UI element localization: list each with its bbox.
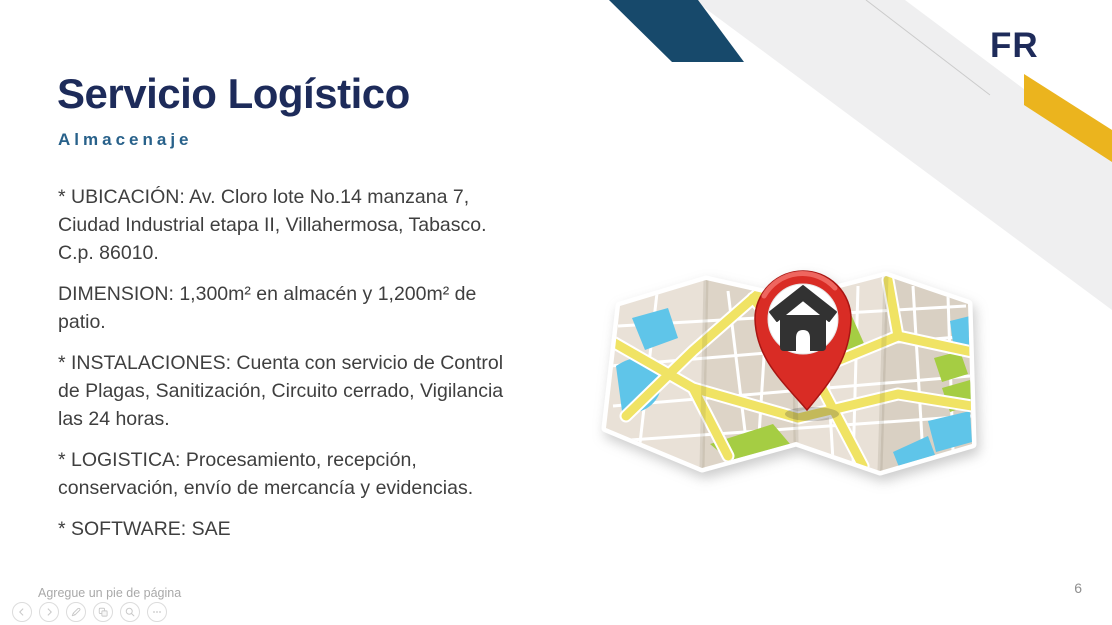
presentation-slide: FR Servicio Logístico Almacenaje * UBICA… [0,0,1112,625]
pen-annotate-icon [70,606,82,618]
slide-subtitle: Almacenaje [58,130,193,150]
body-paragraph-logistica: * LOGISTICA: Procesamiento, recepción, c… [58,446,520,502]
thin-diagonal-line [866,0,990,95]
body-paragraph-dimension: DIMENSION: 1,300m² en almacén y 1,200m² … [58,280,520,336]
more-options-ellipsis-icon [151,606,163,618]
body-paragraph-ubicacion: * UBICACIÓN: Av. Cloro lote No.14 manzan… [58,183,520,267]
more-options-button[interactable] [147,602,167,622]
see-all-slides-icon [97,606,109,618]
reading-view-toolbar [12,602,167,622]
footer-placeholder: Agregue un pie de página [38,586,181,600]
navy-diagonal-shape [609,0,744,62]
body-paragraph-software: * SOFTWARE: SAE [58,515,520,543]
slide-number: 6 [1062,580,1082,596]
zoom-magnifier-icon [124,606,136,618]
folded-map-icon [598,266,982,480]
next-slide-arrow-icon [43,606,55,618]
page-title: Servicio Logístico [57,70,410,118]
pen-annotate-button[interactable] [66,602,86,622]
yellow-diagonal-stripe [1024,74,1112,162]
next-slide-button[interactable] [39,602,59,622]
slide-body-text: * UBICACIÓN: Av. Cloro lote No.14 manzan… [58,183,520,556]
map-location-pin-illustration [598,266,982,480]
previous-slide-button[interactable] [12,602,32,622]
previous-slide-arrow-icon [16,606,28,618]
brand-logo: FR [990,26,1060,66]
zoom-button[interactable] [120,602,140,622]
see-all-slides-button[interactable] [93,602,113,622]
body-paragraph-instalaciones: * INSTALACIONES: Cuenta con servicio de … [58,349,520,433]
